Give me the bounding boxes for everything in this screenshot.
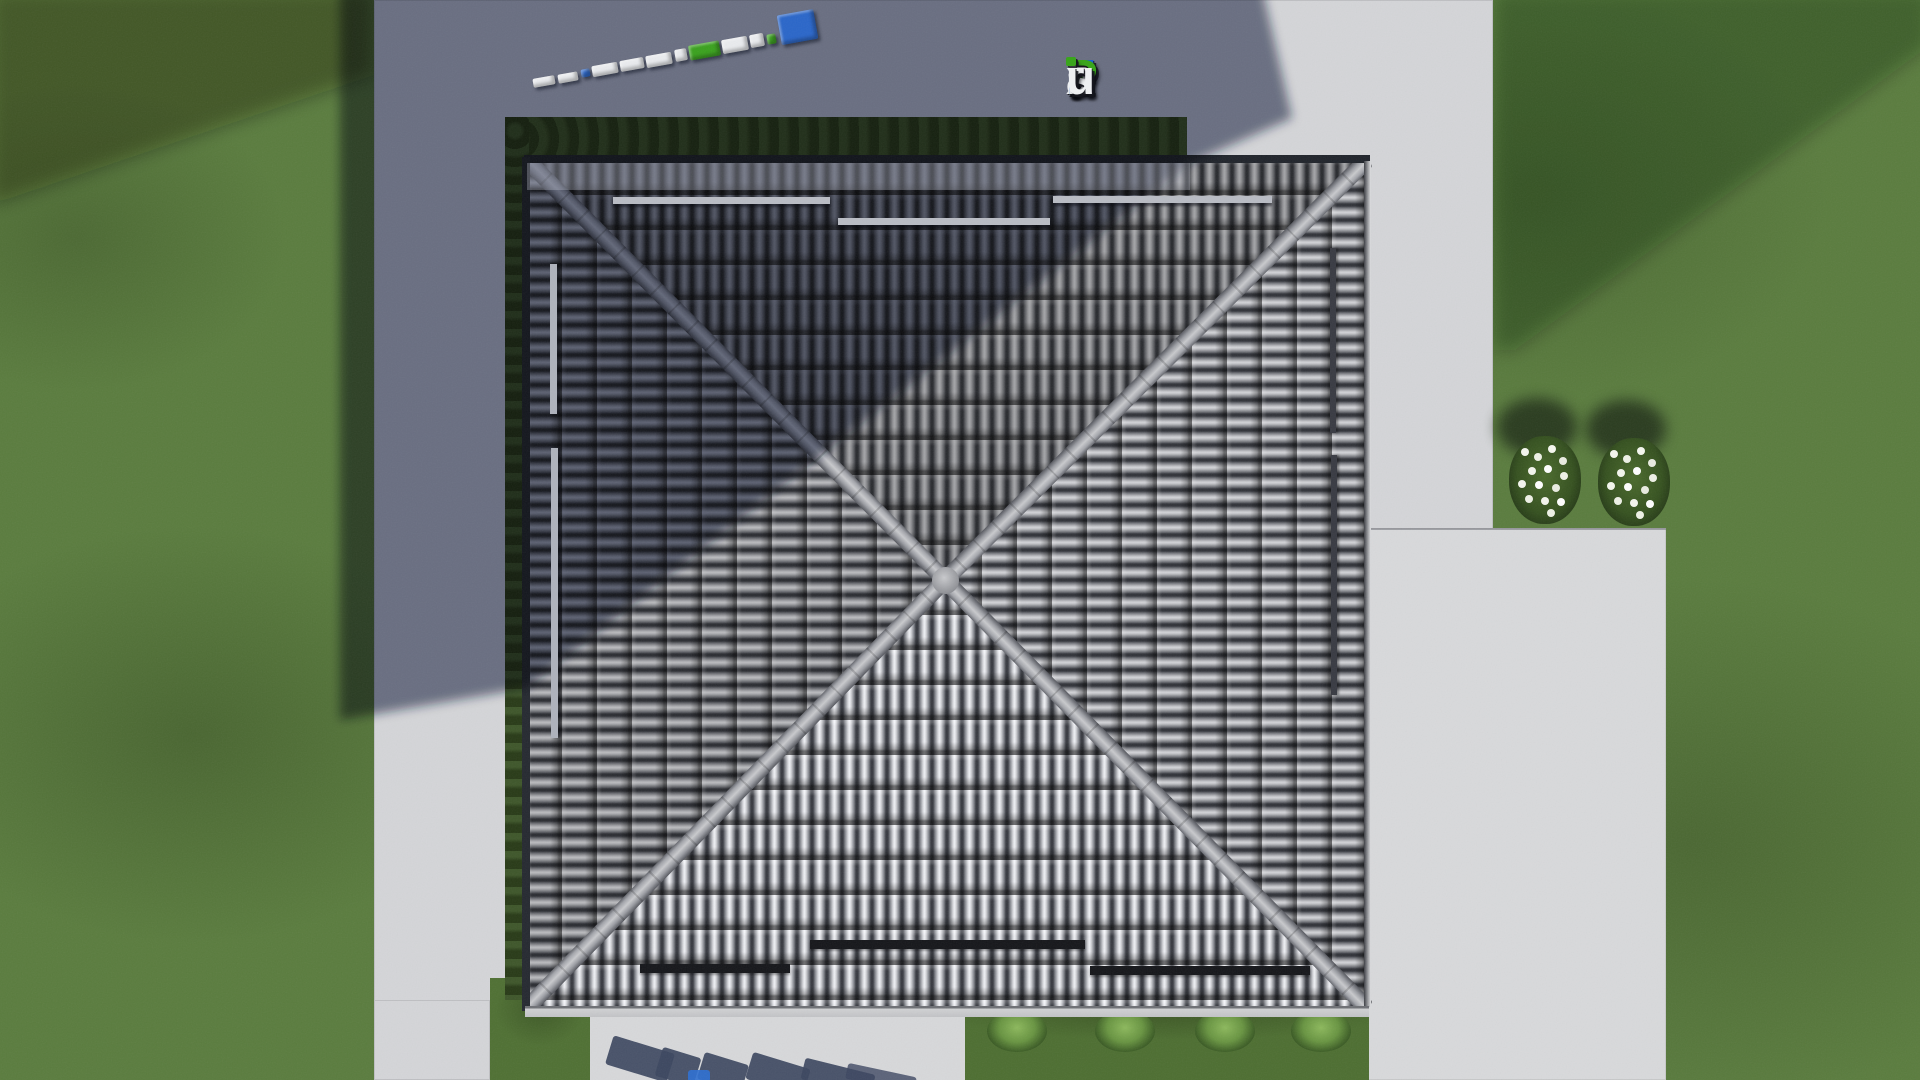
hipped-roof: [527, 160, 1367, 1008]
snow-guard-east-2: [1331, 455, 1337, 695]
snow-guard-south-2: [810, 940, 1085, 949]
snow-guard-east-1: [1330, 248, 1336, 433]
concrete-terrace-right: [1368, 528, 1666, 1080]
white-flowers: [1610, 450, 1618, 458]
aerial-roof-render: FixPlans.ru: [0, 0, 1920, 1080]
eave-north: [524, 155, 1370, 163]
snow-guard-north-2: [838, 218, 1050, 225]
snow-guard-north-1: [613, 197, 830, 204]
ridge-center-cap: [932, 567, 959, 594]
snow-guard-north-3: [1053, 196, 1272, 203]
white-flowers: [1521, 448, 1529, 456]
snow-guard-south-3: [1090, 966, 1310, 975]
eave-south-fascia: [525, 1006, 1369, 1017]
bush-foliage: [1598, 438, 1670, 526]
flower-bush: [1592, 434, 1678, 534]
snow-guard-west-2: [551, 448, 558, 738]
flower-bush: [1503, 432, 1589, 532]
snow-guard-west-1: [550, 264, 557, 414]
eave-east: [1364, 161, 1371, 1007]
shadow-letter-blue: [688, 1070, 710, 1080]
garden-bed-bottom: [965, 1008, 1369, 1080]
concrete-path-left: [374, 1000, 490, 1080]
bush-foliage: [1509, 436, 1581, 524]
eave-west: [522, 157, 530, 1011]
eave-highlight-strip: [527, 163, 1190, 190]
watermark-i-dot: [1066, 57, 1076, 66]
snow-guard-south-1: [640, 964, 790, 973]
